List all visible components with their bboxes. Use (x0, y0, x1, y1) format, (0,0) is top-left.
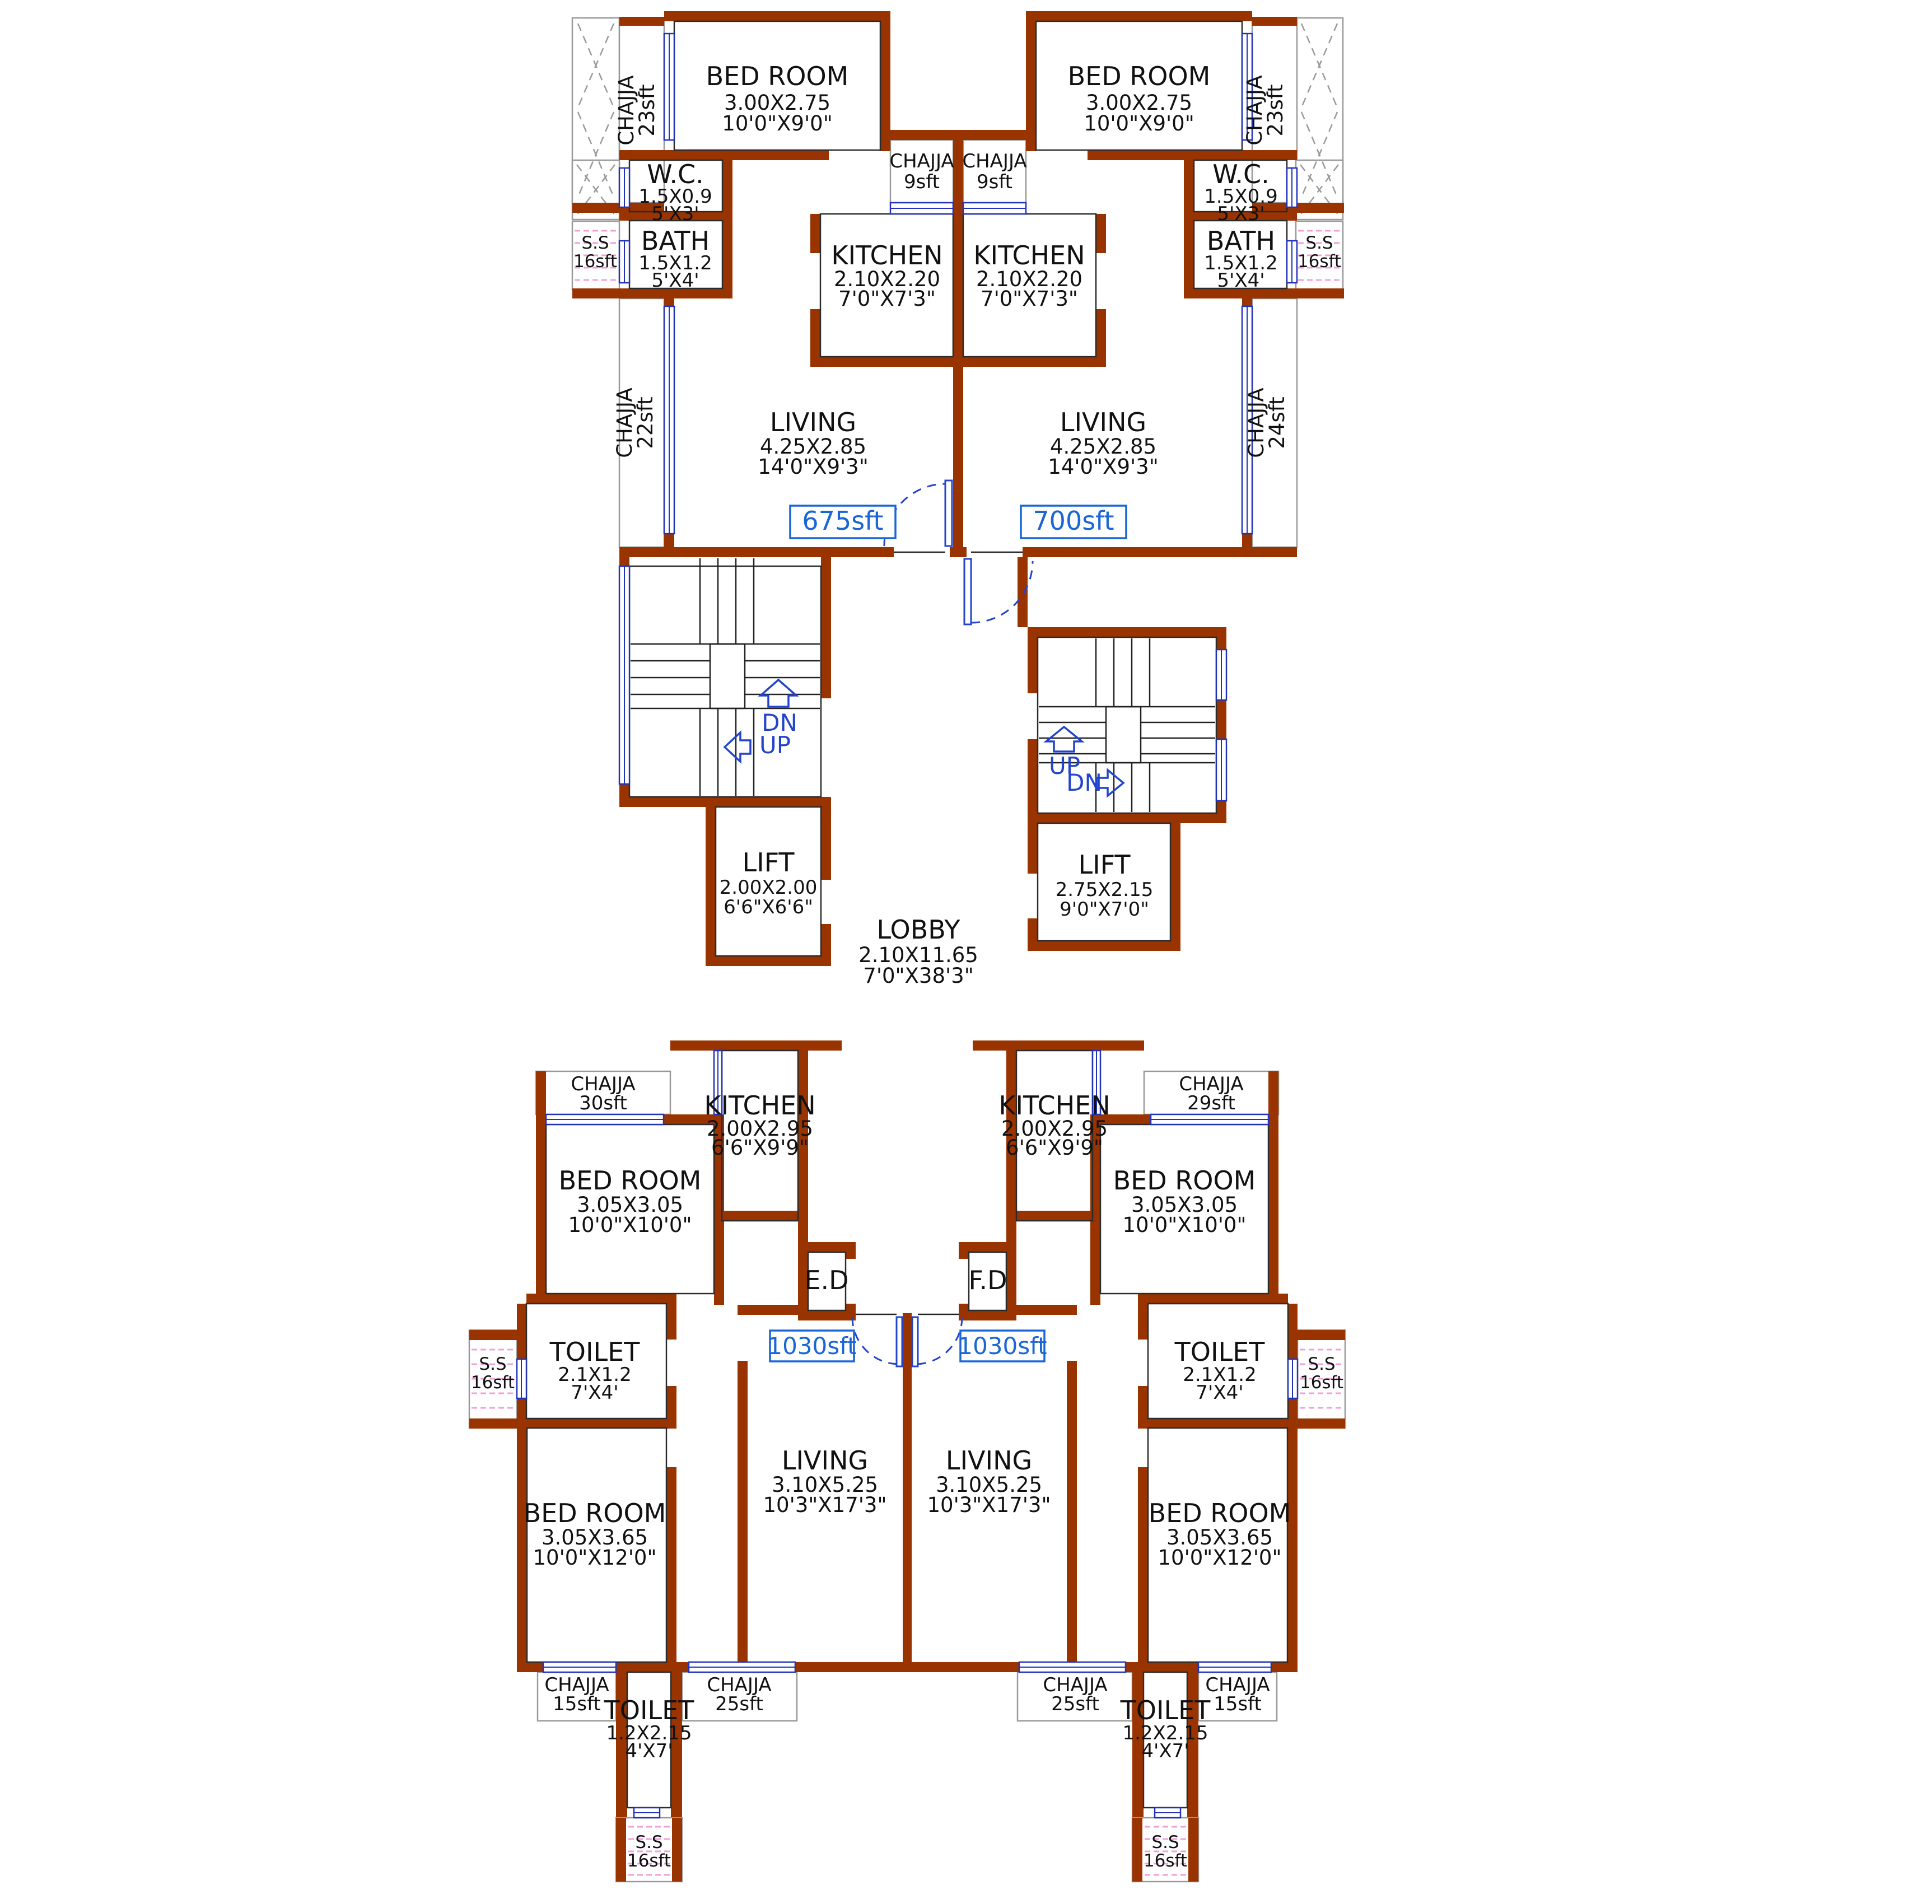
floor-plan-canvas: BED ROOM 3.00X2.75 10'0"X9'0" CHAJJA 23s… (0, 0, 1932, 1904)
stair-up-label: UP (759, 731, 791, 759)
door-swing-icon (915, 1317, 962, 1364)
chajja-area: 29sft (1187, 1092, 1235, 1114)
room-label: KITCHEN (831, 240, 942, 270)
ss-label: S.S (1305, 233, 1333, 253)
ss-area: 16sft (1298, 251, 1341, 272)
room-label: BATH (1207, 226, 1275, 256)
room-label: BED ROOM (1113, 1165, 1256, 1196)
ss-area: 16sft (1144, 1851, 1187, 1871)
room-dim-ft: 7'0"X7'3" (981, 287, 1078, 311)
staircase-right (1039, 638, 1215, 812)
door-leaf-top-left-unit (945, 480, 952, 546)
room-label: LIVING (782, 1445, 868, 1476)
room-dim-ft: 10'3"X17'3" (763, 1493, 887, 1517)
room-dim-ft: 10'0"X9'0" (722, 111, 832, 136)
unit-area-label: 1030sft (767, 1332, 856, 1360)
room-label: LIVING (1060, 407, 1146, 437)
duct-label: E.D (804, 1265, 848, 1295)
staircase-left (631, 558, 820, 796)
room-dim-ft: 10'0"X9'0" (1084, 111, 1194, 136)
chajja-area: 23sft (635, 84, 659, 136)
door-leaf-top-right-unit (964, 559, 971, 624)
chajja-area: 15sft (553, 1693, 601, 1715)
up-arrow-icon (725, 732, 750, 762)
room-dim-ft: 7'0"X38'3" (863, 964, 973, 988)
room-label: BED ROOM (559, 1165, 702, 1196)
room-dim-ft: 7'0"X7'3" (838, 287, 936, 311)
room-label: KITCHEN (998, 1090, 1110, 1121)
room-label: BED ROOM (524, 1498, 666, 1528)
room-dim-ft: 10'3"X17'3" (927, 1493, 1051, 1517)
room-dim-ft: 14'0"X9'3" (1048, 455, 1158, 479)
chajja-area: 25sft (1051, 1693, 1099, 1715)
stair-dn-label: DN (1066, 769, 1102, 796)
chajja-label: CHAJJA (889, 150, 954, 172)
room-dim-ft: 9'0"X7'0" (1060, 898, 1149, 921)
room-dim-ft: 14'0"X9'3" (758, 455, 868, 479)
room-label: TOILET (604, 1695, 695, 1725)
ss-label: S.S (479, 1354, 506, 1374)
door-leaf-bottom-right-unit (912, 1317, 918, 1366)
down-arrow-icon (760, 680, 796, 707)
chajja-area: 24sft (1265, 396, 1289, 449)
room-dim-m: 2.00X2.00 (720, 876, 818, 899)
room-dim-ft: 7'X4' (1196, 1382, 1243, 1404)
chajja-area: 23sft (1263, 84, 1287, 136)
room-dim-ft: 10'0"X12'0" (533, 1546, 657, 1570)
room-dim-ft: 10'0"X12'0" (1158, 1546, 1282, 1570)
ss-label: S.S (1308, 1354, 1335, 1374)
room-label: TOILET (1174, 1337, 1266, 1367)
chajja-area: 30sft (579, 1092, 627, 1114)
floor-plan-drawing: BED ROOM 3.00X2.75 10'0"X9'0" CHAJJA 23s… (0, 0, 1932, 1904)
room-label: BED ROOM (706, 61, 849, 91)
up-arrow-icon (1046, 727, 1082, 752)
room-label: TOILET (549, 1337, 641, 1367)
unit-area-label: 1030sft (958, 1332, 1047, 1360)
door-leaf-bottom-left-unit (897, 1317, 902, 1366)
room-label: BED ROOM (1149, 1498, 1291, 1528)
ss-area: 16sft (471, 1373, 515, 1393)
room-dim-ft: 10'0"X10'0" (1123, 1213, 1247, 1237)
room-dim-ft: 7'X4' (571, 1382, 618, 1404)
room-dim-ft: 6'6"X9'9" (711, 1136, 809, 1160)
duct-label: F.D (968, 1265, 1007, 1295)
room-dim-ft: 4'X7' (1141, 1740, 1189, 1762)
room-dim-ft: 4'X7' (625, 1740, 673, 1762)
chajja-area: 9sft (904, 171, 940, 193)
door-swing-icon (852, 1317, 899, 1364)
room-dim-ft: 10'0"X10'0" (568, 1213, 692, 1237)
room-label: TOILET (1120, 1695, 1211, 1725)
room-dim-ft: 6'6"X9'9" (1006, 1136, 1103, 1160)
chajja-area: 25sft (715, 1693, 763, 1715)
unit-area-label: 700sft (1033, 506, 1114, 536)
ss-area: 16sft (1300, 1373, 1343, 1393)
chajja-area: 9sft (977, 171, 1012, 193)
room-dim-ft: 5'X4' (1217, 269, 1264, 292)
room-label: LIVING (770, 407, 856, 437)
room-label: KITCHEN (973, 240, 1085, 270)
room-dim-m: 2.75X2.15 (1056, 879, 1154, 901)
chajja-area: 22sft (633, 396, 657, 449)
room-dim-ft: 5'X3' (651, 203, 699, 225)
room-label: LIFT (1079, 850, 1131, 880)
unit-area-label: 675sft (802, 506, 883, 536)
room-label: BATH (641, 226, 710, 256)
room-label: KITCHEN (704, 1090, 815, 1121)
ss-area: 16sft (573, 251, 617, 272)
chajja-area: 15sft (1214, 1693, 1262, 1715)
room-label: W.C. (1212, 159, 1270, 189)
room-dim-ft: 5'X3' (1217, 203, 1264, 225)
room-label: BED ROOM (1068, 61, 1211, 91)
ss-label: S.S (581, 233, 609, 253)
ss-label: S.S (1151, 1832, 1179, 1852)
room-dim-ft: 5'X4' (651, 269, 699, 292)
room-label: W.C. (647, 159, 704, 189)
room-label: LIVING (946, 1445, 1032, 1476)
room-dim-ft: 6'6"X6'6" (724, 896, 813, 918)
ss-label: S.S (635, 1832, 662, 1852)
room-label: LOBBY (877, 914, 961, 945)
chajja-label: CHAJJA (962, 150, 1026, 172)
room-label: LIFT (743, 847, 795, 878)
ss-area: 16sft (627, 1851, 671, 1871)
